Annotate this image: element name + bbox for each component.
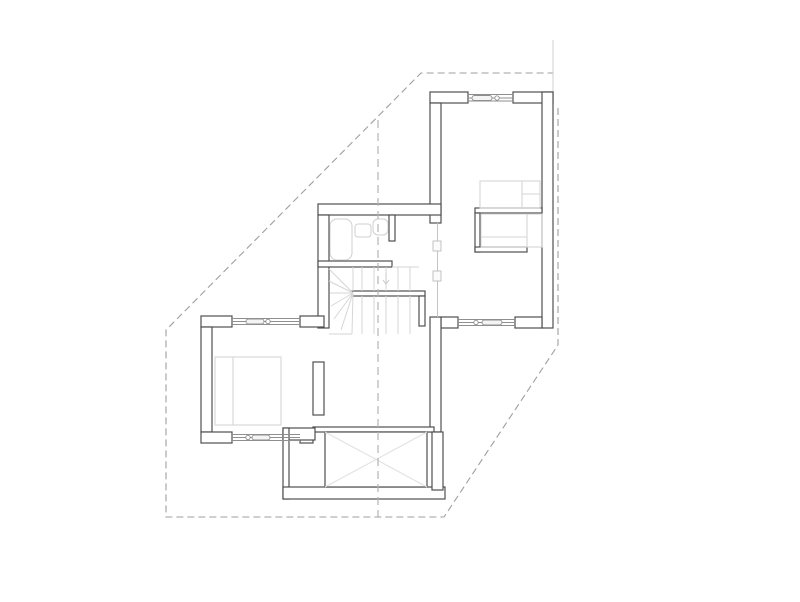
glass-partition bbox=[433, 223, 441, 317]
window-handle-icon bbox=[246, 435, 250, 439]
bed-pillow-line bbox=[522, 181, 540, 208]
wall-segment bbox=[515, 317, 542, 328]
wall-segment bbox=[318, 261, 392, 267]
void-terrace bbox=[325, 432, 427, 487]
stair-winder-treads bbox=[329, 269, 353, 334]
wall-segment bbox=[283, 487, 445, 499]
wall-segment bbox=[389, 215, 395, 241]
wall-segment bbox=[201, 316, 232, 327]
window-vent-icon bbox=[246, 319, 264, 324]
wall-segment bbox=[352, 291, 425, 296]
stair-treads-lower bbox=[362, 296, 410, 334]
window-handle-icon bbox=[474, 320, 478, 324]
window-vent-icon bbox=[252, 435, 270, 440]
wardrobe-divider-line bbox=[481, 214, 527, 247]
wall-segment bbox=[432, 432, 443, 490]
wall-segment bbox=[318, 204, 441, 215]
wall-segment bbox=[542, 92, 553, 328]
window-vent-icon bbox=[482, 320, 502, 325]
wall-segment bbox=[313, 427, 434, 432]
wall-segment bbox=[475, 247, 527, 252]
bed-top-right bbox=[480, 181, 540, 208]
wall-segment bbox=[318, 215, 329, 328]
staircase bbox=[329, 267, 419, 334]
partition-jamb bbox=[433, 271, 441, 281]
bed-outline bbox=[215, 357, 281, 425]
wall-segment bbox=[430, 92, 468, 103]
window-handle-icon bbox=[495, 96, 499, 100]
partition-jamb bbox=[433, 241, 441, 251]
stair-direction-arrow-icon bbox=[383, 273, 389, 284]
wall-segment bbox=[313, 362, 324, 415]
wall-segment bbox=[430, 317, 441, 432]
floor-plan-page bbox=[0, 0, 800, 602]
window-handle-icon bbox=[266, 319, 270, 323]
wall-segment bbox=[201, 327, 212, 432]
wall-segment bbox=[441, 317, 458, 328]
bathtub bbox=[330, 219, 352, 260]
bathroom-fixtures bbox=[330, 219, 388, 260]
toilet bbox=[373, 219, 388, 235]
wall-segment bbox=[419, 296, 425, 326]
floor-plan-drawing bbox=[0, 0, 800, 602]
wall-segment bbox=[475, 213, 480, 252]
window-bottom-right bbox=[458, 320, 515, 326]
wall-segment bbox=[201, 432, 232, 443]
bed-bottom-left bbox=[215, 357, 281, 425]
wardrobe bbox=[481, 214, 542, 247]
wall-segment bbox=[475, 208, 542, 213]
wardrobe-outline bbox=[481, 214, 542, 247]
wall-segment bbox=[300, 316, 324, 327]
washbasin bbox=[355, 224, 371, 237]
window-vent-icon bbox=[472, 96, 492, 101]
window-bedroom-top bbox=[232, 319, 300, 325]
window-top-right bbox=[468, 95, 513, 102]
